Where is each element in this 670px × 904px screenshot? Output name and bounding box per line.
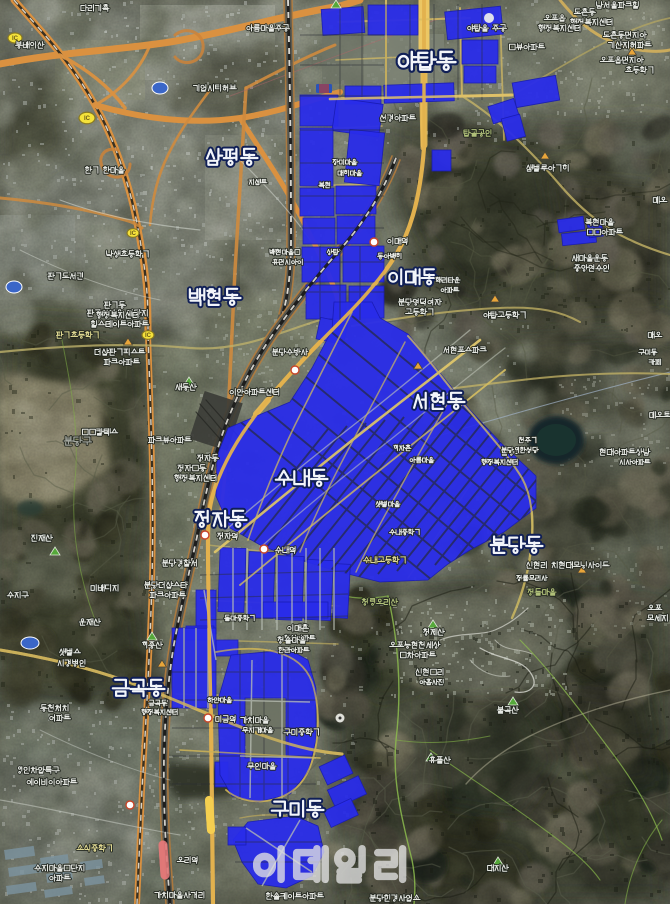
svg-text:IC: IC — [130, 231, 137, 237]
svg-text:IC: IC — [84, 116, 91, 122]
svg-text:IC: IC — [145, 333, 152, 339]
